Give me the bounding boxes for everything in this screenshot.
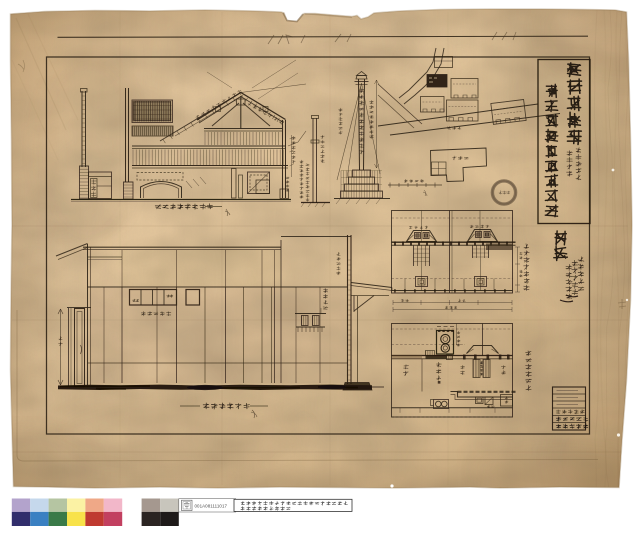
svg-text:001A081111017: 001A081111017 xyxy=(195,504,228,509)
